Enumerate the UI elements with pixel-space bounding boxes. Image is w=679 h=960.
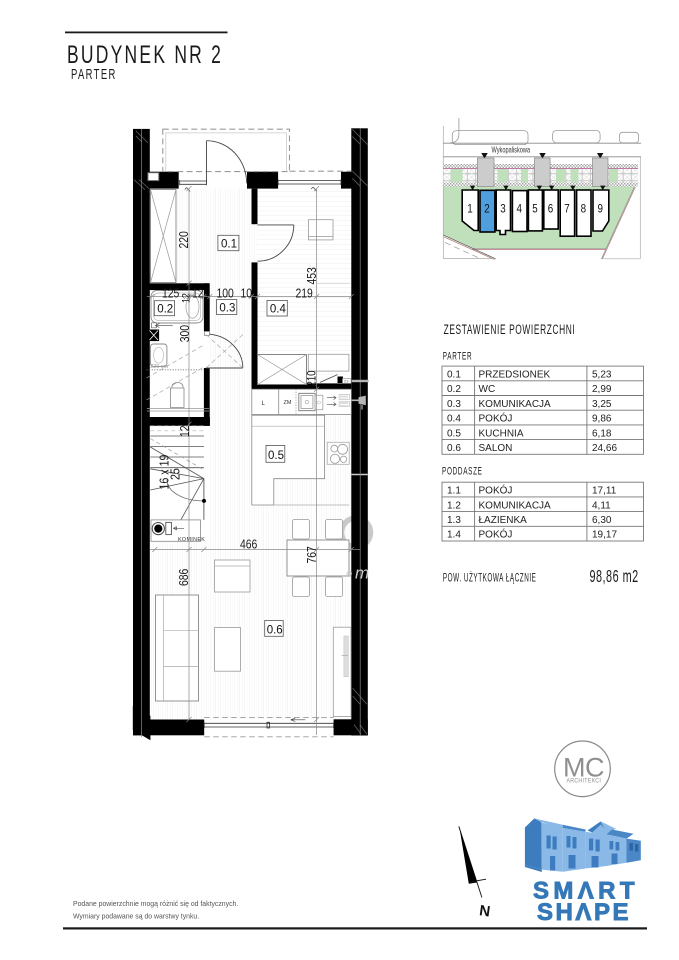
svg-text:0.4: 0.4 xyxy=(447,414,461,425)
svg-text:0.6: 0.6 xyxy=(267,624,283,636)
svg-text:220 cm: 220 cm xyxy=(150,364,168,370)
svg-text:1.2: 1.2 xyxy=(447,500,461,511)
svg-text:25: 25 xyxy=(167,468,182,480)
svg-text:0.1: 0.1 xyxy=(447,370,461,381)
svg-text:7: 7 xyxy=(564,203,569,216)
svg-text:23: 23 xyxy=(344,379,349,384)
svg-text:4,11: 4,11 xyxy=(592,500,611,511)
svg-text:3: 3 xyxy=(500,203,505,216)
svg-text:24,66: 24,66 xyxy=(592,443,617,454)
svg-text:6: 6 xyxy=(548,203,553,216)
svg-text:466: 466 xyxy=(240,537,258,551)
svg-text:10: 10 xyxy=(241,286,253,300)
svg-text:POKÓJ: POKÓJ xyxy=(479,412,513,425)
svg-text:KOMUNIKACJA: KOMUNIKACJA xyxy=(479,500,552,511)
svg-text:1.1: 1.1 xyxy=(447,486,461,497)
svg-text:9,86: 9,86 xyxy=(592,414,612,425)
svg-text:6,30: 6,30 xyxy=(592,515,612,526)
svg-text:BUDYNEK NR 2: BUDYNEK NR 2 xyxy=(67,40,223,69)
svg-text:9: 9 xyxy=(598,203,603,216)
svg-text:5,23: 5,23 xyxy=(592,370,612,381)
svg-text:WC: WC xyxy=(479,384,496,395)
svg-text:5: 5 xyxy=(532,203,537,216)
svg-text:PARTER: PARTER xyxy=(71,66,117,83)
svg-text:12: 12 xyxy=(181,293,193,303)
svg-text:ZESTAWIENIE POWIERZCHNI: ZESTAWIENIE POWIERZCHNI xyxy=(444,323,576,337)
svg-text:0.2: 0.2 xyxy=(447,384,461,395)
svg-text:1: 1 xyxy=(467,203,472,216)
svg-text:0.3: 0.3 xyxy=(219,302,235,314)
svg-text:o: o xyxy=(346,568,352,580)
svg-text:ARCHITEKCI: ARCHITEKCI xyxy=(567,778,602,784)
svg-text:POKÓJ: POKÓJ xyxy=(479,528,513,541)
svg-text:219: 219 xyxy=(296,286,313,300)
svg-text:300: 300 xyxy=(178,325,192,343)
svg-text:98,86 m2: 98,86 m2 xyxy=(590,568,639,587)
svg-text:PRZEDSIONEK: PRZEDSIONEK xyxy=(479,370,551,381)
svg-text:6,18: 6,18 xyxy=(592,428,612,439)
svg-text:0.5: 0.5 xyxy=(447,428,461,439)
svg-text:ZM: ZM xyxy=(284,400,292,406)
svg-text:2,99: 2,99 xyxy=(592,384,612,395)
svg-text:PARTER: PARTER xyxy=(443,350,472,362)
svg-text:1.3: 1.3 xyxy=(447,515,461,526)
svg-text:Wykopaliskowa: Wykopaliskowa xyxy=(492,147,531,155)
svg-text:2: 2 xyxy=(484,203,489,216)
svg-text:210: 210 xyxy=(305,370,318,386)
svg-text:8: 8 xyxy=(581,203,586,216)
svg-text:0.3: 0.3 xyxy=(447,399,461,410)
svg-text:0.4: 0.4 xyxy=(270,304,287,316)
svg-text:125: 125 xyxy=(162,286,180,300)
svg-text:0.6: 0.6 xyxy=(447,443,461,454)
svg-text:0.2: 0.2 xyxy=(157,304,173,316)
svg-text:17,11: 17,11 xyxy=(592,486,617,497)
svg-text:KOMUNIKACJA: KOMUNIKACJA xyxy=(479,399,552,410)
svg-text:SHΛPE: SHΛPE xyxy=(537,899,629,926)
svg-text:12: 12 xyxy=(192,286,204,300)
svg-text:POW. UŻYTKOWA ŁĄCZNIE: POW. UŻYTKOWA ŁĄCZNIE xyxy=(443,572,537,586)
svg-text:12: 12 xyxy=(178,425,192,437)
svg-text:100: 100 xyxy=(217,286,235,300)
svg-text:m: m xyxy=(355,564,369,583)
svg-text:453: 453 xyxy=(305,267,319,285)
svg-text:SALON: SALON xyxy=(479,443,513,454)
svg-text:Wymiary podawane są do warstwy: Wymiary podawane są do warstwy tynku. xyxy=(73,911,199,920)
svg-text:0.5: 0.5 xyxy=(268,450,284,462)
svg-text:1.4: 1.4 xyxy=(447,530,461,541)
svg-text:686: 686 xyxy=(177,568,191,586)
svg-text:767: 767 xyxy=(305,546,319,563)
svg-text:KUCHNIA: KUCHNIA xyxy=(479,428,524,439)
svg-text:POKÓJ: POKÓJ xyxy=(479,484,513,497)
svg-text:KOMINEK: KOMINEK xyxy=(178,537,205,543)
svg-text:Podane powierzchnie mogą różni: Podane powierzchnie mogą różnić się od f… xyxy=(73,899,238,908)
svg-text:ŁAZIENKA: ŁAZIENKA xyxy=(479,515,528,526)
svg-text:4: 4 xyxy=(517,203,522,216)
svg-text:19,17: 19,17 xyxy=(592,530,617,541)
svg-text:PODDASZE: PODDASZE xyxy=(442,465,483,477)
svg-text:220: 220 xyxy=(177,231,191,249)
svg-text:0.1: 0.1 xyxy=(221,238,237,250)
svg-text:3,25: 3,25 xyxy=(592,399,612,410)
